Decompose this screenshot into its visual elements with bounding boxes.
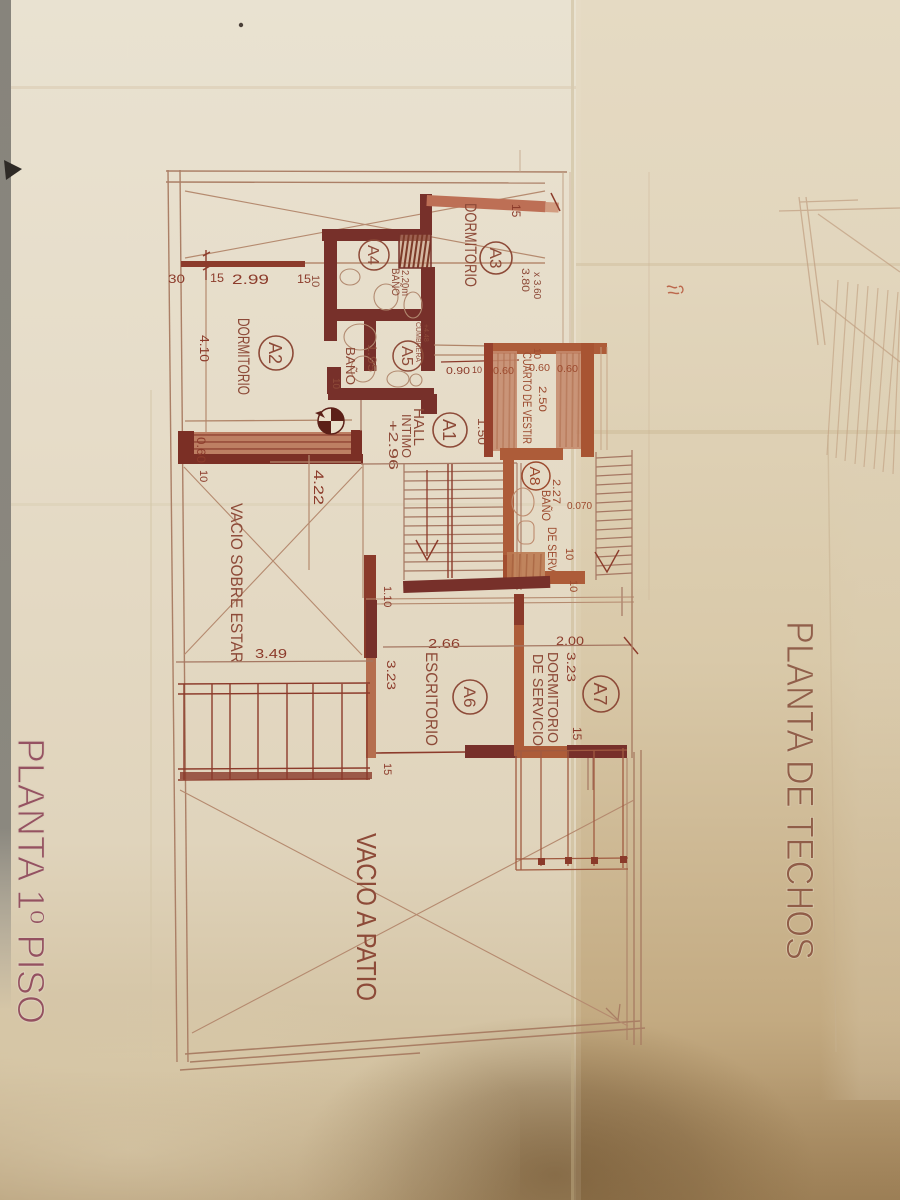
svg-text:DORMITORIO: DORMITORIO (461, 203, 480, 287)
svg-text:2.66: 2.66 (428, 636, 460, 651)
svg-text:10: 10 (563, 548, 575, 560)
svg-text:A2: A2 (265, 342, 285, 364)
svg-text:DE SERVICIO: DE SERVICIO (529, 654, 546, 746)
svg-text:2.99: 2.99 (232, 271, 269, 287)
svg-text:PLANTA DE TECHOS: PLANTA DE TECHOS (778, 621, 820, 960)
svg-text:+2.96: +2.96 (386, 420, 401, 470)
svg-text:3.23: 3.23 (384, 660, 398, 690)
svg-text:10: 10 (309, 275, 321, 287)
svg-text:3.49: 3.49 (255, 646, 287, 661)
svg-text:BAÑO: BAÑO (343, 347, 358, 385)
svg-text:ESCRITORIO: ESCRITORIO (422, 652, 441, 746)
svg-text:10: 10 (472, 365, 482, 375)
svg-text:DORMITORIO: DORMITORIO (234, 318, 253, 395)
svg-text:10: 10 (330, 378, 341, 390)
svg-text:4.10: 4.10 (197, 335, 212, 362)
svg-text:15: 15 (381, 763, 393, 775)
svg-text:DE SERV.: DE SERV. (545, 527, 559, 574)
svg-text:2,20m: 2,20m (399, 270, 410, 296)
svg-text:A6: A6 (460, 687, 479, 708)
svg-text:x 3.60: x 3.60 (531, 272, 542, 300)
svg-text:3.23: 3.23 (564, 652, 578, 682)
svg-text:A8: A8 (526, 467, 543, 486)
svg-text:PLANTA 1º PISO: PLANTA 1º PISO (9, 738, 51, 1024)
svg-text:10: 10 (197, 470, 209, 482)
svg-text:A7: A7 (590, 683, 610, 706)
svg-text:+4.48: +4.48 (422, 324, 429, 342)
svg-text:15: 15 (210, 271, 224, 285)
svg-text:A5: A5 (398, 346, 415, 366)
svg-text:4.22: 4.22 (311, 470, 327, 505)
svg-text:10: 10 (531, 348, 542, 360)
svg-text:0.60: 0.60 (493, 366, 514, 377)
svg-text:1.10: 1.10 (381, 586, 393, 607)
svg-text:VACIO A PATIO: VACIO A PATIO (351, 833, 382, 1001)
svg-text:VACIO SOBRE ESTAR: VACIO SOBRE ESTAR (227, 503, 246, 663)
svg-text:0.90: 0.90 (446, 366, 471, 377)
svg-text:3.80: 3.80 (519, 268, 531, 292)
svg-text:1.95: 1.95 (365, 344, 379, 372)
svg-text:15: 15 (570, 727, 584, 741)
svg-text:A1: A1 (439, 419, 459, 441)
svg-text:CUMBRERA: CUMBRERA (414, 322, 421, 362)
svg-text:A3: A3 (486, 248, 505, 269)
svg-text:2.27: 2.27 (550, 479, 562, 504)
svg-text:0.60: 0.60 (194, 437, 208, 463)
svg-text:10: 10 (567, 580, 579, 592)
svg-text:15: 15 (509, 204, 523, 218)
svg-text:0.60: 0.60 (557, 364, 578, 375)
svg-text:0.070: 0.070 (567, 501, 592, 512)
svg-text:0.60: 0.60 (529, 363, 550, 374)
svg-text:2.00: 2.00 (556, 634, 584, 648)
svg-text:2.50: 2.50 (536, 386, 548, 412)
svg-text:30: 30 (168, 272, 185, 286)
svg-text:A4: A4 (364, 245, 381, 265)
